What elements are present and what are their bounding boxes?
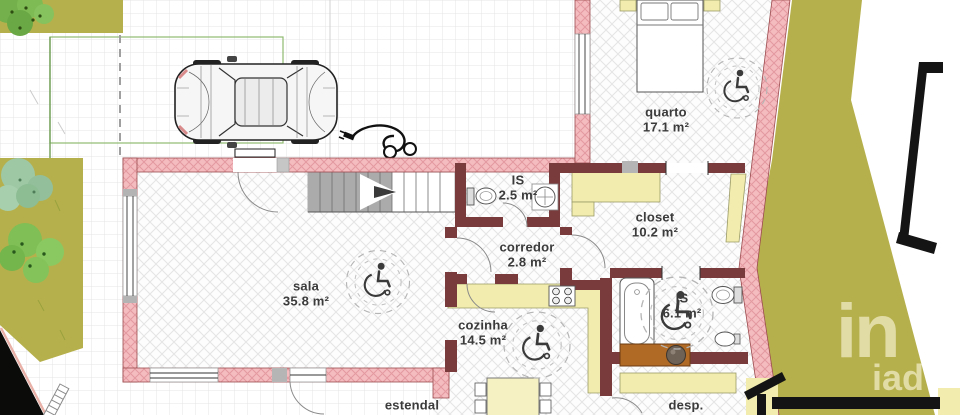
room-area: 2.8 m² — [499, 255, 554, 270]
room-name: closet — [632, 210, 678, 225]
room-name: IS — [663, 291, 702, 306]
floor-plan-drawing: in iad — [0, 0, 960, 415]
room-name: desp. — [669, 399, 704, 414]
bathroom2-toilet-icon — [712, 287, 742, 304]
room-label-sala: sala 35.8 m² — [283, 279, 329, 308]
room-area: 2.5 m² — [499, 188, 538, 203]
pantry-cabinet — [620, 373, 736, 393]
room-label-is-2: IS 6.1 m² — [663, 291, 702, 320]
room-name: corredor — [499, 240, 554, 255]
room-area: 6.1 m² — [663, 306, 702, 321]
room-label-quarto: quarto 17.1 m² — [643, 105, 689, 134]
bathroom1-toilet-icon — [467, 188, 496, 205]
room-name: estendal — [385, 399, 439, 414]
room-name: IS — [499, 173, 538, 188]
room-name: quarto — [643, 105, 689, 120]
floor-plan-canvas: in iad — [0, 0, 960, 415]
room-label-is-1: IS 2.5 m² — [499, 173, 538, 202]
room-label-estendal: estendal — [385, 399, 439, 414]
room-label-desp: desp. — [669, 399, 704, 414]
room-label-cozinha: cozinha 14.5 m² — [458, 318, 508, 347]
bathtub-icon — [620, 278, 654, 350]
stairs — [308, 172, 455, 212]
stove-icon — [549, 286, 575, 306]
room-label-closet: closet 10.2 m² — [632, 210, 678, 239]
room-label-corredor: corredor 2.8 m² — [499, 240, 554, 269]
car-icon — [175, 56, 337, 148]
vanity-counter — [620, 344, 690, 366]
room-area: 17.1 m² — [643, 120, 689, 135]
room-name: sala — [283, 279, 329, 294]
room-area: 35.8 m² — [283, 294, 329, 309]
room-area: 14.5 m² — [458, 333, 508, 348]
room-area: 10.2 m² — [632, 225, 678, 240]
bidet-icon — [715, 332, 740, 346]
room-name: cozinha — [458, 318, 508, 333]
watermark-text-bottom: iad — [872, 357, 924, 398]
